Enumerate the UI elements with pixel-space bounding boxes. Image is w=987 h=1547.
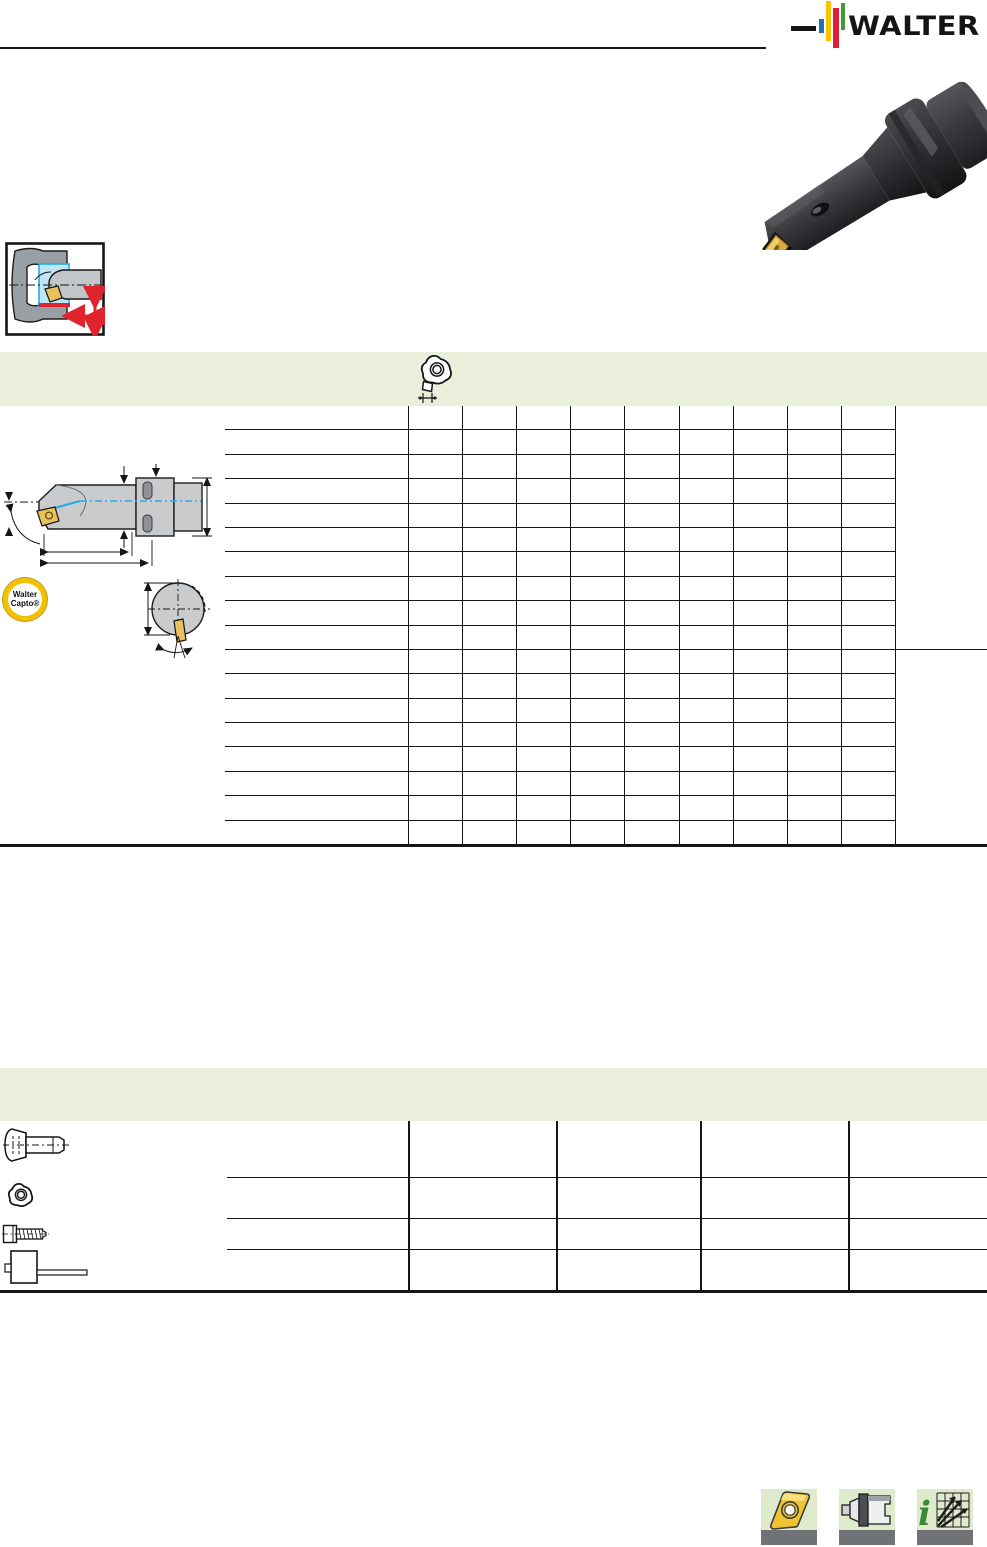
cutting-data-tile: i <box>917 1489 973 1530</box>
spec-dimension-cell <box>679 406 733 430</box>
spec-dimension-cell <box>841 577 895 601</box>
spec-dimension-cell <box>841 455 895 479</box>
spec-dimension-cell <box>841 504 895 528</box>
spec-dimension-cell <box>841 626 895 650</box>
spec-dimension-cell <box>733 504 787 528</box>
spec-dimension-cell <box>408 552 462 576</box>
spec-dimension-cell <box>624 650 678 674</box>
spec-order-label-cell <box>225 601 408 625</box>
spec-dimension-cell <box>787 504 841 528</box>
accessories-col-line-4 <box>848 1121 850 1291</box>
insert-tile <box>761 1489 817 1530</box>
spec-dimension-cell <box>408 699 462 723</box>
spec-dimension-cell <box>787 430 841 454</box>
spec-dimension-cell <box>733 796 787 820</box>
capto-logo-line2: Capto® <box>11 600 40 609</box>
spec-order-label-cell <box>225 699 408 723</box>
spec-dimension-cell <box>787 674 841 698</box>
spec-dimension-cell <box>787 650 841 674</box>
adaptor-tile-bar <box>839 1530 895 1545</box>
spec-dimension-cell <box>841 821 895 845</box>
spec-dimension-cell <box>462 406 516 430</box>
walter-logo-red-bar <box>833 8 839 48</box>
spec-dimension-cell <box>841 650 895 674</box>
spec-dimension-cell <box>733 406 787 430</box>
spec-dimension-cell <box>408 430 462 454</box>
spec-dimension-cell <box>733 601 787 625</box>
spec-dimension-cell <box>462 552 516 576</box>
spec-dimension-cell <box>408 577 462 601</box>
spec-dimension-cell <box>679 796 733 820</box>
spec-dimension-cell <box>679 430 733 454</box>
spec-dimension-cell <box>408 479 462 503</box>
spec-dimension-cell <box>841 430 895 454</box>
spec-dimension-cell <box>787 723 841 747</box>
walter-logo-dash <box>791 26 816 31</box>
spec-dimension-cell <box>570 479 624 503</box>
accessories-col-line-1 <box>408 1121 410 1291</box>
spec-dimension-cell <box>679 479 733 503</box>
spec-dimension-cell <box>841 552 895 576</box>
spec-dimension-cell <box>516 504 570 528</box>
adaptor-icon <box>839 1489 895 1530</box>
spec-dimension-cell <box>570 430 624 454</box>
spec-dimension-cell <box>516 455 570 479</box>
spec-order-label-cell <box>225 674 408 698</box>
walter-logo-green-bar <box>841 3 845 30</box>
spec-dimension-cell <box>570 504 624 528</box>
spec-dimension-cell <box>733 552 787 576</box>
spec-dimension-cell <box>570 699 624 723</box>
spec-dimension-cell <box>787 747 841 771</box>
spec-dimension-cell <box>624 796 678 820</box>
spec-dimension-cell <box>787 821 841 845</box>
spec-dimension-cell <box>841 674 895 698</box>
spec-dimension-cell <box>408 650 462 674</box>
spec-dimension-cell <box>408 528 462 552</box>
accessories-row-line-2 <box>227 1218 987 1219</box>
spec-order-label-cell <box>225 723 408 747</box>
spec-dimension-cell <box>733 650 787 674</box>
spec-dimension-cell <box>462 430 516 454</box>
spec-dimension-cell <box>408 504 462 528</box>
spec-dimension-cell <box>516 601 570 625</box>
walter-logo-yellow-bar <box>826 1 831 41</box>
spec-dimension-cell <box>462 699 516 723</box>
spec-dimension-cell <box>679 577 733 601</box>
spec-dimension-cell <box>570 601 624 625</box>
spec-order-label-cell <box>225 504 408 528</box>
spec-dimension-cell <box>733 455 787 479</box>
boring-bar-side-view-drawing <box>4 452 216 582</box>
spec-dimension-cell <box>516 479 570 503</box>
spec-dimension-cell <box>570 723 624 747</box>
spec-dimension-cell <box>570 577 624 601</box>
spec-dimension-cell <box>733 479 787 503</box>
header-rule <box>0 47 766 49</box>
spec-dimension-cell <box>624 455 678 479</box>
spec-order-label-cell <box>225 747 408 771</box>
spec-dimension-cell <box>679 552 733 576</box>
spec-dimension-cell <box>408 796 462 820</box>
spec-dimension-cell <box>462 455 516 479</box>
spec-dimension-cell <box>516 552 570 576</box>
spec-table-group-separator-extension <box>894 649 987 650</box>
spec-dimension-cell <box>679 504 733 528</box>
spec-dimension-cell <box>516 430 570 454</box>
spec-dimension-cell <box>462 796 516 820</box>
spec-dimension-cell <box>733 821 787 845</box>
spec-order-label-cell <box>225 430 408 454</box>
spec-dimension-cell <box>624 552 678 576</box>
spec-dimension-cell <box>787 626 841 650</box>
cutting-data-info-icon: i <box>917 1489 973 1530</box>
section2-bottom-rule <box>0 1290 987 1293</box>
spec-dimension-cell <box>787 479 841 503</box>
spec-dimension-cell <box>787 577 841 601</box>
spec-order-label-cell <box>225 577 408 601</box>
spec-dimension-cell <box>733 723 787 747</box>
spec-dimension-cell <box>462 821 516 845</box>
spec-order-label-cell <box>225 552 408 576</box>
accessories-row-line-1 <box>227 1177 987 1178</box>
spec-dimension-cell <box>408 747 462 771</box>
spec-dimension-cell <box>841 796 895 820</box>
spec-order-label-cell <box>225 528 408 552</box>
spec-dimension-cell <box>516 747 570 771</box>
spec-dimension-cell <box>841 601 895 625</box>
spec-dimension-cell <box>624 601 678 625</box>
spec-dimension-cell <box>733 772 787 796</box>
spec-dimension-cell <box>733 747 787 771</box>
spec-dimension-cell <box>624 504 678 528</box>
spec-dimension-cell <box>679 601 733 625</box>
spec-dimension-cell <box>733 528 787 552</box>
spec-dimension-cell <box>787 528 841 552</box>
spec-dimension-cell <box>787 601 841 625</box>
spec-dimension-cell <box>679 699 733 723</box>
section2-header-band <box>0 1068 987 1121</box>
spec-dimension-cell <box>679 747 733 771</box>
spec-dimension-cell <box>516 650 570 674</box>
spec-dimension-cell <box>516 626 570 650</box>
spec-dimension-cell <box>516 821 570 845</box>
spec-order-label-cell <box>225 479 408 503</box>
spec-dimension-cell <box>462 650 516 674</box>
spec-table <box>225 406 896 845</box>
spec-dimension-cell <box>570 796 624 820</box>
spec-dimension-cell <box>516 406 570 430</box>
spec-dimension-cell <box>462 723 516 747</box>
spec-dimension-cell <box>624 479 678 503</box>
spec-dimension-cell <box>787 699 841 723</box>
spec-dimension-cell <box>841 747 895 771</box>
boring-bar-end-view-drawing <box>136 576 214 660</box>
spec-dimension-cell <box>733 626 787 650</box>
spec-dimension-cell <box>516 674 570 698</box>
spec-dimension-cell <box>570 626 624 650</box>
spec-dimension-cell <box>679 528 733 552</box>
section1-bottom-rule <box>0 844 987 847</box>
spec-dimension-cell <box>408 772 462 796</box>
spec-dimension-cell <box>570 528 624 552</box>
spec-dimension-cell <box>570 650 624 674</box>
spec-dimension-cell <box>841 528 895 552</box>
spec-dimension-cell <box>408 626 462 650</box>
spec-dimension-cell <box>516 796 570 820</box>
cutting-data-tile-bar <box>917 1530 973 1545</box>
spec-dimension-cell <box>841 772 895 796</box>
spec-dimension-cell <box>841 479 895 503</box>
spec-dimension-cell <box>408 723 462 747</box>
walter-logo-text: WALTER <box>848 10 987 41</box>
spec-dimension-cell <box>462 772 516 796</box>
spec-dimension-cell <box>624 674 678 698</box>
spec-order-label-cell <box>225 796 408 820</box>
svg-text:i: i <box>918 1494 931 1530</box>
torx-screw-icon <box>2 1224 50 1244</box>
indexable-insert-icon <box>5 1181 37 1215</box>
spec-dimension-cell <box>462 577 516 601</box>
spec-dimension-cell <box>462 479 516 503</box>
walter-logo-blue-bar <box>819 19 824 33</box>
spec-dimension-cell <box>570 455 624 479</box>
spec-dimension-cell <box>841 723 895 747</box>
trigon-insert-icon <box>417 354 457 404</box>
spec-dimension-cell <box>624 626 678 650</box>
spec-dimension-cell <box>787 455 841 479</box>
spec-dimension-cell <box>462 747 516 771</box>
spec-dimension-cell <box>679 455 733 479</box>
spec-dimension-cell <box>624 577 678 601</box>
spec-dimension-cell <box>624 406 678 430</box>
spec-dimension-cell <box>624 430 678 454</box>
spec-order-label-cell <box>225 455 408 479</box>
spec-dimension-cell <box>516 699 570 723</box>
spec-dimension-cell <box>624 528 678 552</box>
spec-dimension-cell <box>462 601 516 625</box>
spec-dimension-cell <box>787 552 841 576</box>
spec-dimension-cell <box>679 772 733 796</box>
spec-dimension-cell <box>624 747 678 771</box>
spec-dimension-cell <box>679 723 733 747</box>
spec-dimension-cell <box>679 650 733 674</box>
accessories-row-line-3 <box>227 1249 987 1250</box>
insert-icon <box>761 1489 817 1530</box>
internal-turning-application-pictogram <box>5 242 105 336</box>
spec-dimension-cell <box>408 455 462 479</box>
spec-dimension-cell <box>570 406 624 430</box>
accessories-col-line-3 <box>700 1121 702 1291</box>
boring-bar-with-capto-shank-photo <box>750 58 987 250</box>
spec-dimension-cell <box>570 552 624 576</box>
spec-dimension-cell <box>841 406 895 430</box>
catalog-page: WALTER <box>0 0 987 1547</box>
spec-dimension-cell <box>462 674 516 698</box>
spec-dimension-cell <box>679 674 733 698</box>
spec-dimension-cell <box>516 772 570 796</box>
spec-dimension-cell <box>570 747 624 771</box>
spec-dimension-cell <box>408 601 462 625</box>
spec-dimension-cell <box>624 821 678 845</box>
spec-dimension-cell <box>516 577 570 601</box>
section1-header-band <box>0 352 987 406</box>
spec-dimension-cell <box>679 821 733 845</box>
spec-order-label-cell <box>225 821 408 845</box>
spec-dimension-cell <box>679 626 733 650</box>
insert-tile-bar <box>761 1530 817 1545</box>
spec-dimension-cell <box>733 674 787 698</box>
spec-order-label-cell <box>225 772 408 796</box>
spec-dimension-cell <box>516 723 570 747</box>
clamping-screw-icon <box>3 1126 71 1164</box>
spec-dimension-cell <box>570 772 624 796</box>
torque-wrench-icon <box>4 1249 89 1287</box>
spec-dimension-cell <box>570 821 624 845</box>
spec-dimension-cell <box>733 699 787 723</box>
spec-dimension-cell <box>408 821 462 845</box>
spec-dimension-cell <box>624 723 678 747</box>
walter-capto-logo: Walter Capto® <box>3 578 47 621</box>
spec-dimension-cell <box>733 577 787 601</box>
spec-dimension-cell <box>408 406 462 430</box>
spec-dimension-cell <box>462 504 516 528</box>
spec-dimension-cell <box>624 772 678 796</box>
spec-dimension-cell <box>841 699 895 723</box>
spec-dimension-cell <box>462 626 516 650</box>
spec-dimension-cell <box>787 796 841 820</box>
spec-order-label-cell <box>225 626 408 650</box>
spec-dimension-cell <box>462 528 516 552</box>
spec-order-label-cell <box>225 406 408 430</box>
spec-dimension-cell <box>787 772 841 796</box>
spec-dimension-cell <box>787 406 841 430</box>
spec-dimension-cell <box>624 699 678 723</box>
spec-order-label-cell <box>225 650 408 674</box>
spec-dimension-cell <box>408 674 462 698</box>
spec-dimension-cell <box>733 430 787 454</box>
spec-dimension-cell <box>570 674 624 698</box>
spec-dimension-cell <box>516 528 570 552</box>
accessories-col-line-2 <box>556 1121 558 1291</box>
adaptor-tile <box>839 1489 895 1530</box>
